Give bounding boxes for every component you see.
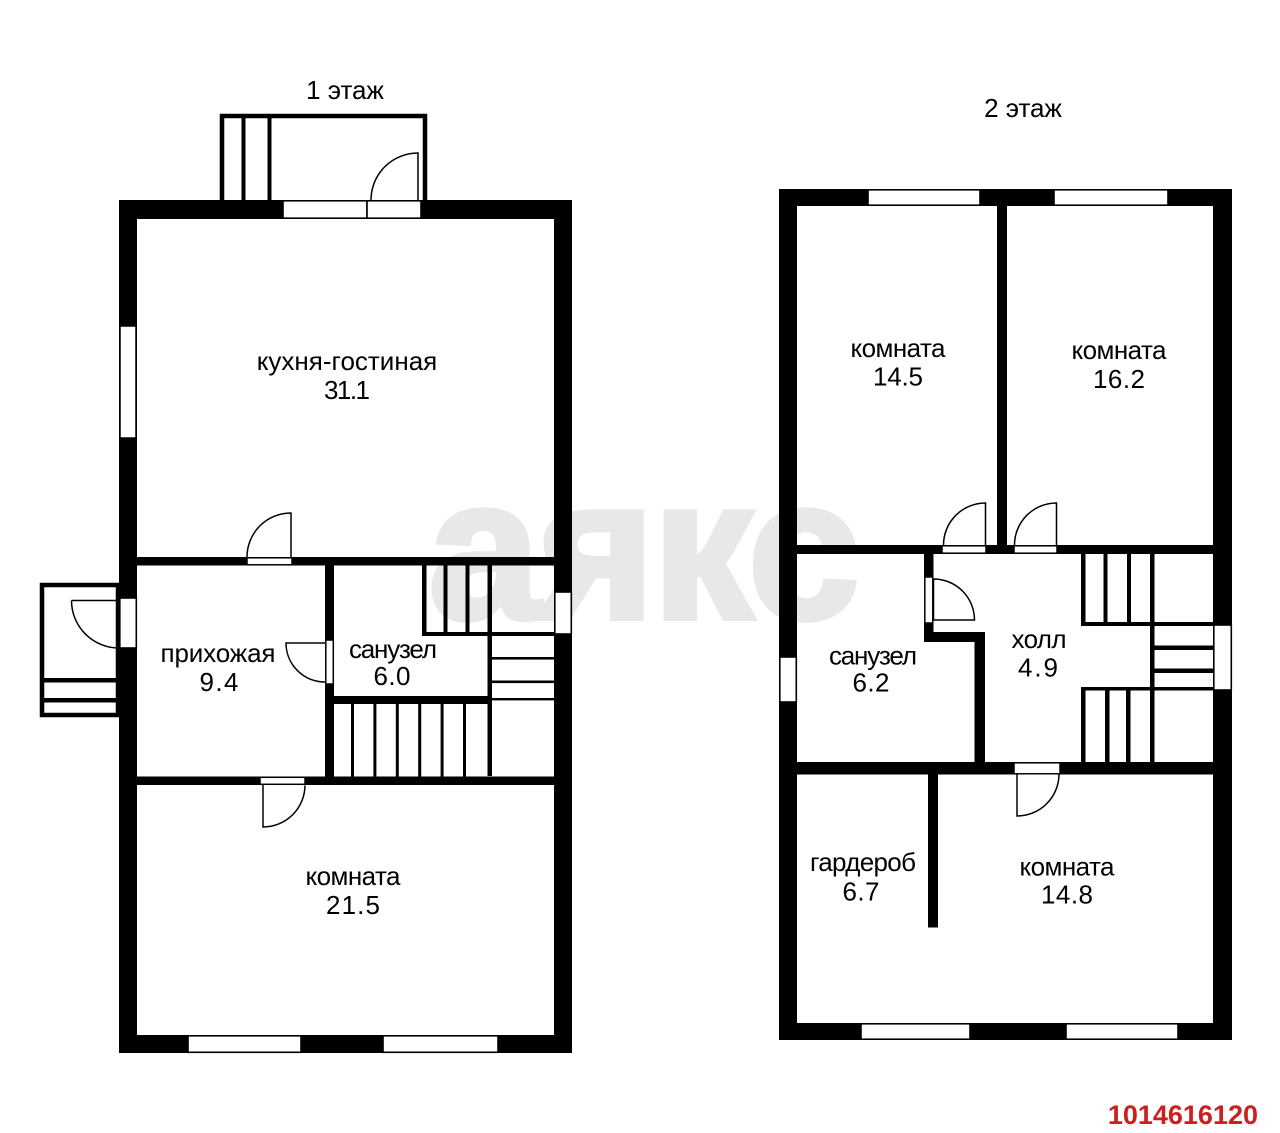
svg-text:6.2: 6.2 xyxy=(853,668,890,698)
svg-text:гардероб: гардероб xyxy=(810,847,916,877)
svg-text:14.8: 14.8 xyxy=(1041,880,1093,910)
svg-text:9.4: 9.4 xyxy=(200,667,239,697)
svg-text:4.9: 4.9 xyxy=(1018,653,1058,683)
svg-text:комната: комната xyxy=(1020,852,1116,882)
svg-text:6.0: 6.0 xyxy=(374,661,411,691)
svg-text:6.7: 6.7 xyxy=(843,877,880,907)
svg-text:комната: комната xyxy=(851,333,947,363)
svg-text:санузел: санузел xyxy=(829,641,917,671)
svg-text:16.2: 16.2 xyxy=(1093,364,1145,394)
svg-text:санузел: санузел xyxy=(349,634,437,664)
svg-text:комната: комната xyxy=(1072,335,1168,365)
svg-text:21.5: 21.5 xyxy=(326,890,380,920)
svg-text:прихожая: прихожая xyxy=(161,638,276,668)
svg-text:комната: комната xyxy=(306,861,402,891)
svg-text:холл: холл xyxy=(1012,624,1067,654)
svg-text:14.5: 14.5 xyxy=(873,362,923,392)
svg-text:1 этаж: 1 этаж xyxy=(306,75,384,105)
svg-text:31.1: 31.1 xyxy=(324,375,370,405)
svg-text:2 этаж: 2 этаж xyxy=(984,93,1062,123)
svg-text:1014616120: 1014616120 xyxy=(1108,1100,1258,1130)
svg-text:кухня-гостиная: кухня-гостиная xyxy=(257,346,437,376)
